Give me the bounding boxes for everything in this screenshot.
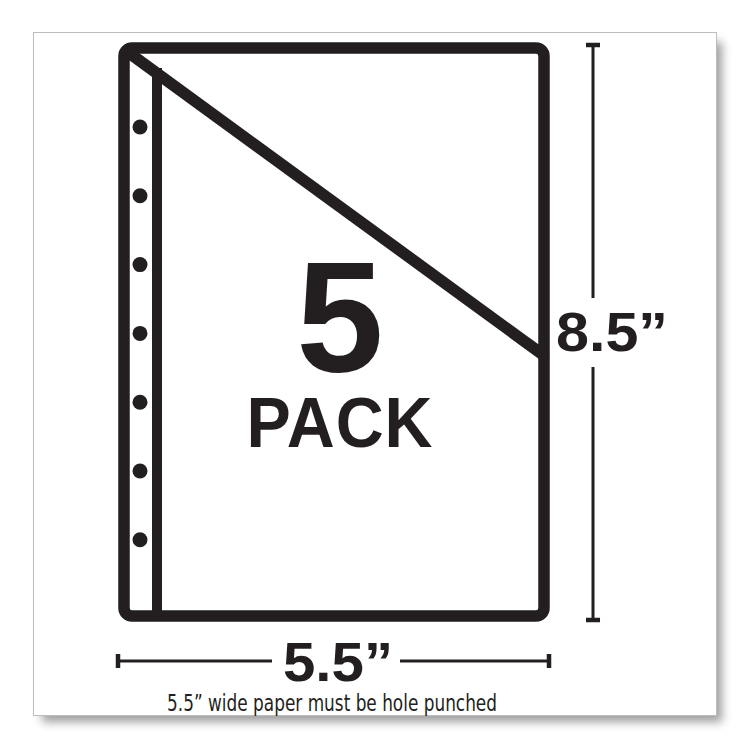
footnote-text: 5.5” wide paper must be hole punched	[167, 690, 497, 716]
width-dimension-label: 5.5”	[283, 630, 393, 693]
punch-hole-dot-icon	[133, 188, 148, 203]
punch-hole-dot-icon	[133, 464, 148, 479]
product-image: 5 PACK 8.5” 5.5” 5.5” wide paper must be…	[0, 0, 750, 750]
punch-hole-dot-icon	[133, 326, 148, 341]
punch-hole-dot-icon	[133, 120, 148, 135]
height-dimension: 8.5”	[556, 45, 668, 620]
pack-quantity: 5	[296, 229, 383, 404]
punch-holes	[133, 120, 148, 548]
punch-hole-dot-icon	[133, 395, 148, 410]
width-dimension: 5.5”	[118, 630, 549, 693]
punch-hole-dot-icon	[133, 257, 148, 272]
pack-label: PACK	[247, 384, 434, 462]
punch-hole-dot-icon	[133, 532, 148, 547]
product-diagram: 5 PACK 8.5” 5.5” 5.5” wide paper must be…	[0, 0, 750, 750]
height-dimension-label: 8.5”	[556, 300, 668, 363]
